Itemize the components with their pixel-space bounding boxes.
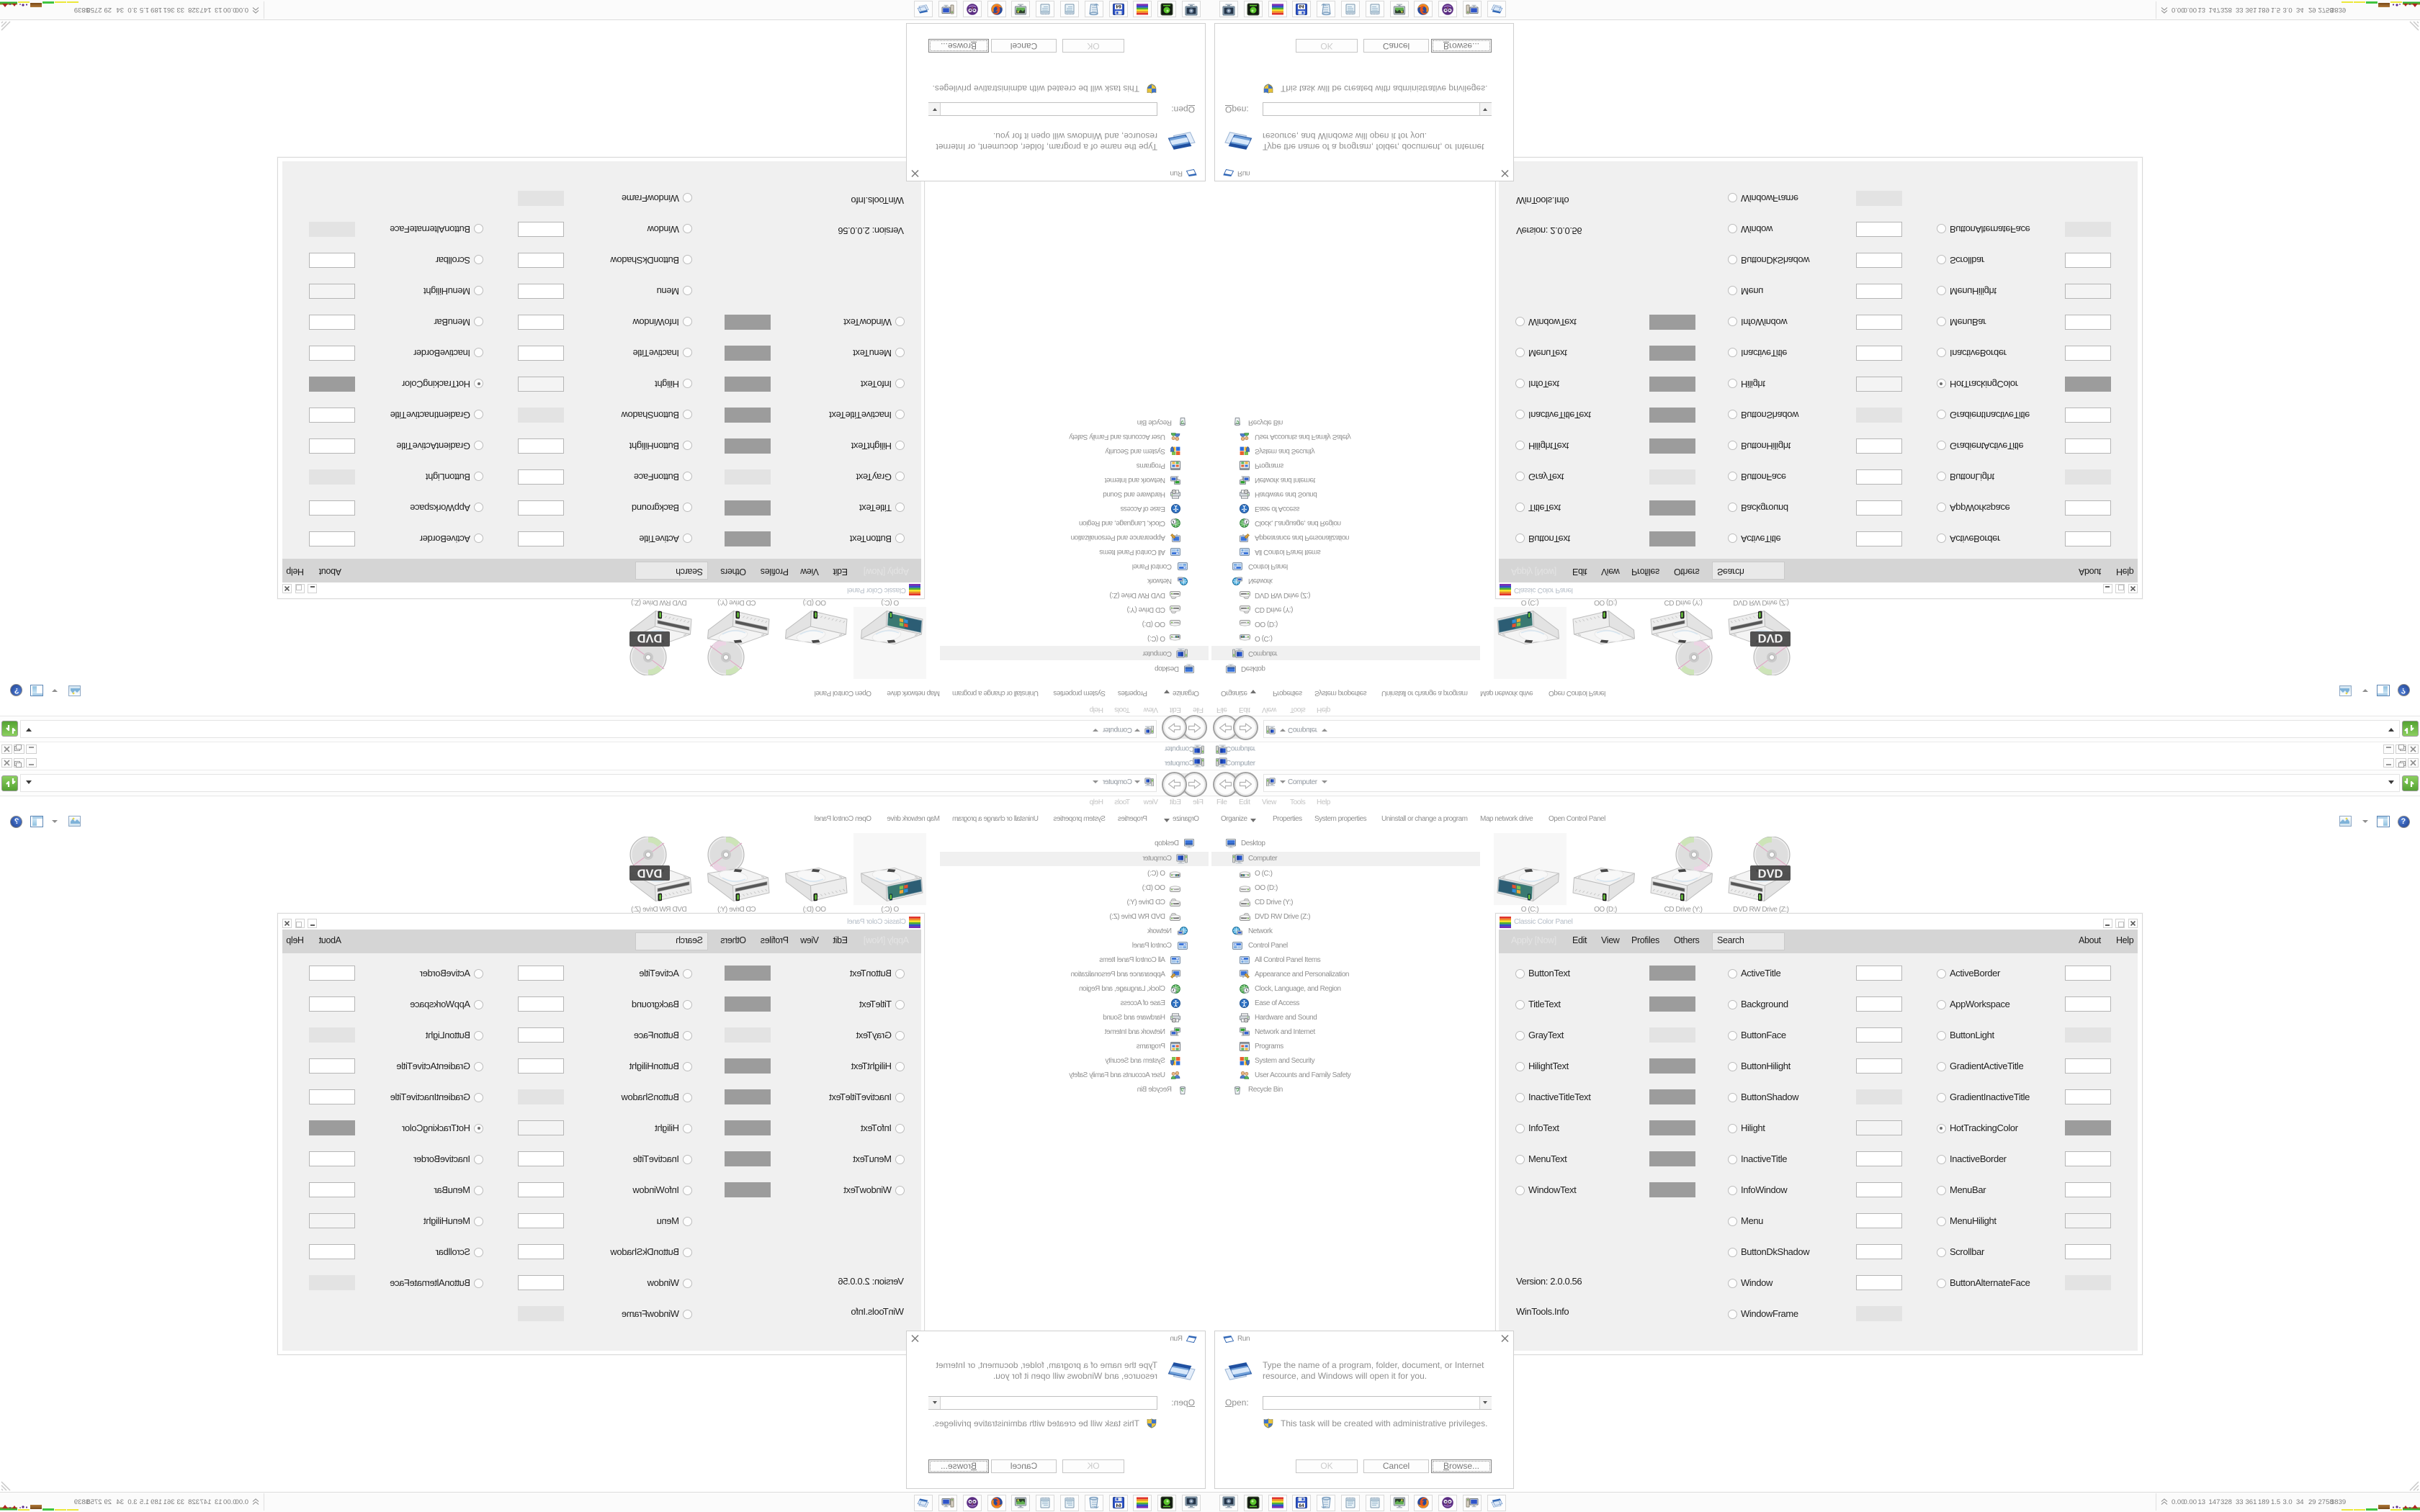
svg-text:64: 64 <box>1116 4 1121 9</box>
svg-text:DVD: DVD <box>1758 631 1783 644</box>
svg-text:64: 64 <box>1299 1503 1305 1508</box>
svg-text:64: 64 <box>1116 1503 1121 1508</box>
svg-text:DVD: DVD <box>637 631 663 644</box>
svg-text:DVD: DVD <box>637 868 663 881</box>
svg-text:64: 64 <box>1299 4 1305 9</box>
svg-text:DVD: DVD <box>1758 868 1783 881</box>
